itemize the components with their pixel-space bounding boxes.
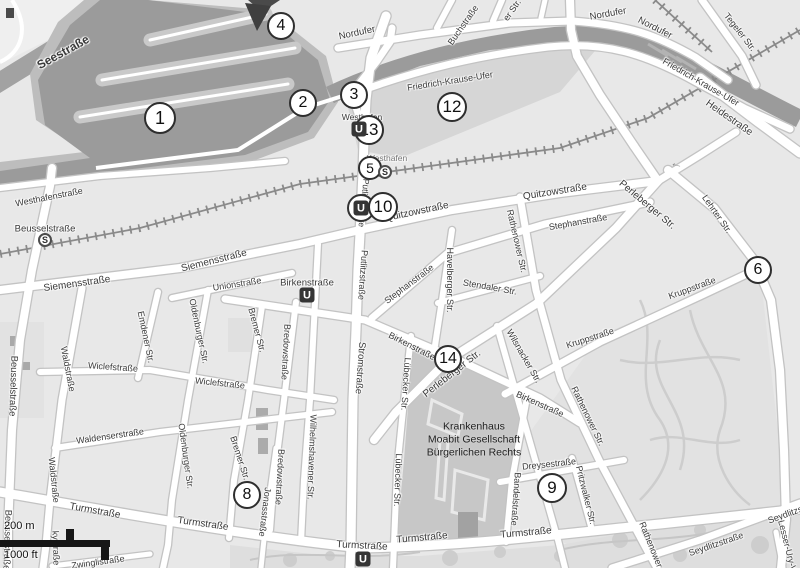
scale-bar-rule — [0, 540, 110, 547]
scale-bar: 200 m 1000 ft — [0, 520, 140, 568]
scale-imperial-tick — [101, 547, 109, 560]
map-marker-3[interactable]: 3 — [340, 81, 368, 109]
hospital-label-line: Moabit Gesellschaft — [427, 434, 522, 447]
hospital-label: KrankenhausMoabit GesellschaftBürgerlich… — [427, 421, 522, 460]
map-viewport[interactable]: SeestraßeWesthafenstraßeBeusselstraßeBeu… — [0, 0, 800, 568]
small-park-center — [228, 318, 252, 352]
map-marker-2[interactable]: 2 — [289, 89, 317, 117]
nw-building — [6, 8, 14, 18]
street-label-l-becker-str: Lübecker Str. — [392, 453, 404, 506]
hospital-label-line: Bürgerlichen Rechts — [427, 447, 522, 460]
s-bahn-station-icon: S — [38, 233, 52, 247]
scale-imperial-label: 1000 ft — [4, 549, 38, 561]
street-label-havelberger-str: Havelberger Str. — [445, 247, 455, 312]
scale-metric-tick — [66, 529, 74, 540]
map-marker-12[interactable]: 12 — [437, 92, 467, 122]
u-bahn-station-icon: U — [356, 552, 371, 567]
map-marker-14[interactable]: 14 — [434, 345, 462, 373]
map-marker-1[interactable]: 1 — [144, 102, 176, 134]
map-marker-6[interactable]: 6 — [744, 256, 772, 284]
map-marker-9[interactable]: 9 — [537, 473, 567, 503]
s-bahn-station-icon: S — [378, 165, 392, 179]
u-bahn-station-icon: U — [352, 122, 367, 137]
street-label-beusselstra-e: Beusselstraße — [6, 355, 19, 416]
hospital-dark-building — [458, 512, 478, 538]
u-bahn-station-icon: U — [300, 288, 315, 303]
map-marker-10[interactable]: 10 — [368, 192, 398, 222]
u-bahn-station-icon: U — [354, 201, 369, 216]
scale-metric-label: 200 m — [4, 520, 35, 532]
hospital-label-line: Krankenhaus — [427, 421, 522, 434]
map-marker-4[interactable]: 4 — [267, 12, 295, 40]
map-marker-8[interactable]: 8 — [233, 481, 261, 509]
